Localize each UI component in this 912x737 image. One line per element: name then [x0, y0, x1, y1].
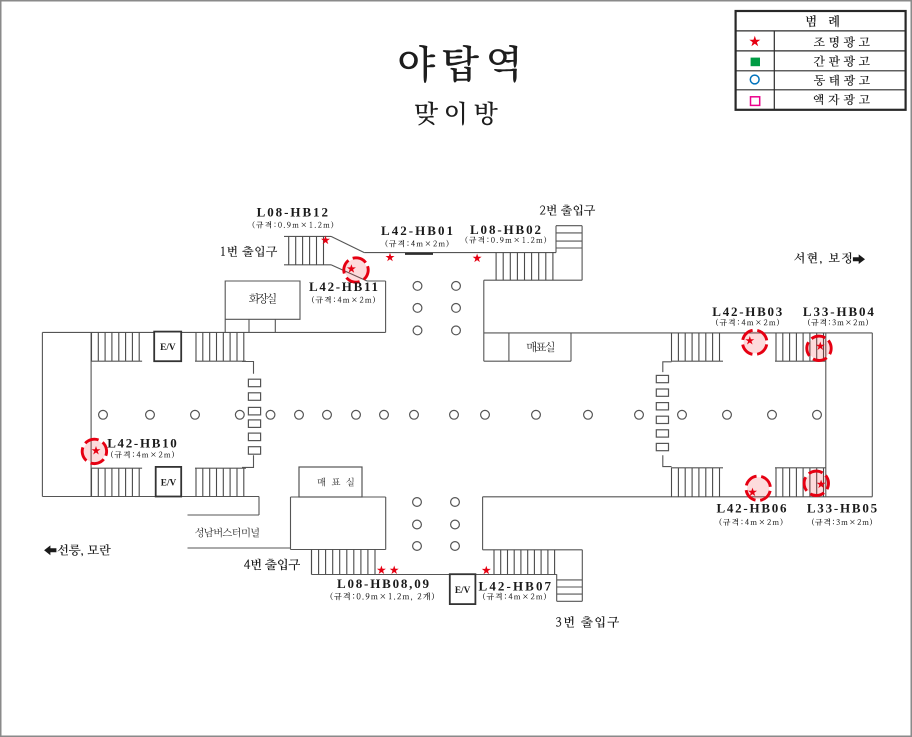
- svg-text:L42-HB07: L42-HB07: [479, 578, 552, 593]
- svg-text:L08-HB08,09: L08-HB08,09: [337, 576, 430, 591]
- svg-text:L42-HB06: L42-HB06: [717, 500, 788, 515]
- svg-text:L42-HB10: L42-HB10: [107, 435, 177, 450]
- svg-text:E/V: E/V: [455, 586, 471, 596]
- svg-text:L33-HB04: L33-HB04: [803, 304, 875, 319]
- svg-text:L33-HB05: L33-HB05: [807, 500, 878, 515]
- svg-text:L08-HB12: L08-HB12: [257, 205, 328, 220]
- svg-text:L42-HB11: L42-HB11: [309, 279, 378, 294]
- svg-text:E/V: E/V: [160, 343, 176, 353]
- svg-text:E/V: E/V: [161, 478, 177, 488]
- svg-text:L42-HB01: L42-HB01: [381, 223, 453, 238]
- svg-text:L08-HB02: L08-HB02: [470, 222, 541, 237]
- svg-text:L42-HB03: L42-HB03: [712, 304, 783, 319]
